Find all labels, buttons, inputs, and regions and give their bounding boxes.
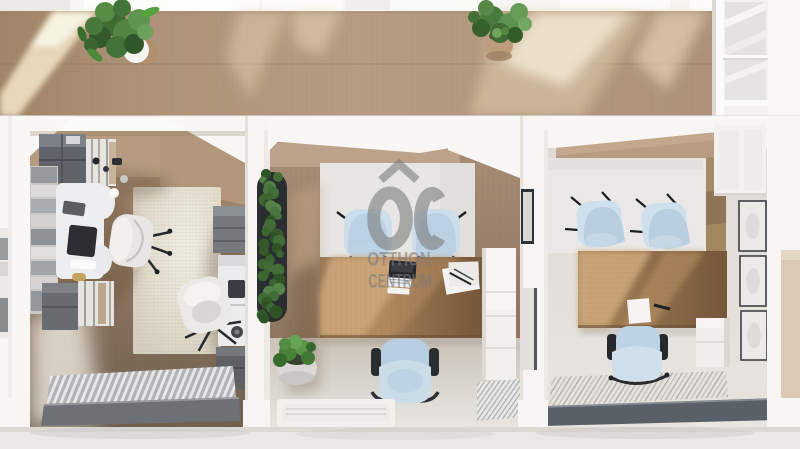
- svg-text:CENTRUM: CENTRUM: [369, 272, 432, 293]
- svg-text:OTTHON: OTTHON: [368, 250, 431, 271]
